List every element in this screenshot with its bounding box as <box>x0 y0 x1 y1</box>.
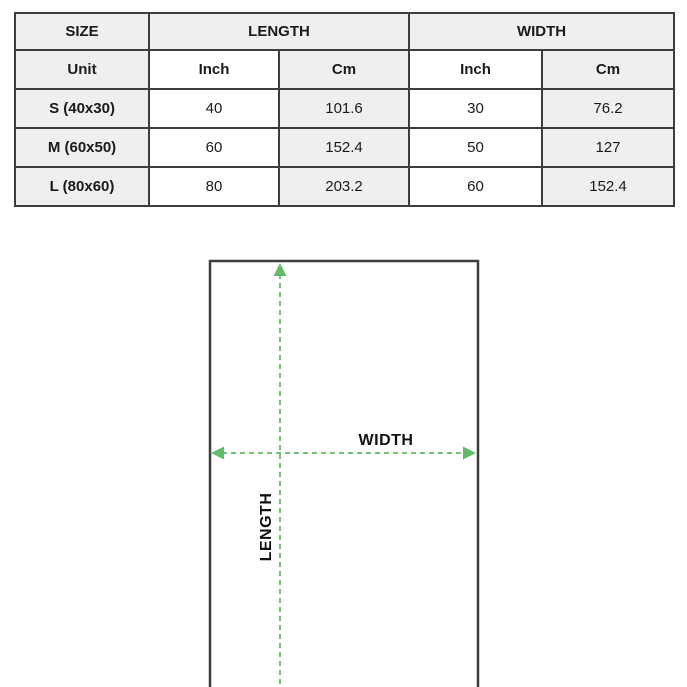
length-cm-cell: 152.4 <box>279 128 409 167</box>
size-guide-page: SIZE LENGTH WIDTH Unit Inch Cm Inch Cm S… <box>0 0 687 687</box>
length-inch-cell: 60 <box>149 128 279 167</box>
size-label-cell: L (80x60) <box>15 167 149 206</box>
size-label-cell: M (60x50) <box>15 128 149 167</box>
table-row-medium: M (60x50) 60 152.4 50 127 <box>15 128 674 167</box>
length-cm-cell: 101.6 <box>279 89 409 128</box>
width-cm-header-cell: Cm <box>542 50 674 89</box>
table-row-large: L (80x60) 80 203.2 60 152.4 <box>15 167 674 206</box>
table-row-small: S (40x30) 40 101.6 30 76.2 <box>15 89 674 128</box>
unit-header-cell: Unit <box>15 50 149 89</box>
blanket-outline <box>210 261 478 687</box>
width-cm-cell: 152.4 <box>542 167 674 206</box>
size-chart-table: SIZE LENGTH WIDTH Unit Inch Cm Inch Cm S… <box>14 12 675 207</box>
length-inch-cell: 80 <box>149 167 279 206</box>
width-cm-cell: 76.2 <box>542 89 674 128</box>
length-inch-header-cell: Inch <box>149 50 279 89</box>
length-column-header: LENGTH <box>149 13 409 50</box>
length-cm-cell: 203.2 <box>279 167 409 206</box>
width-cm-cell: 127 <box>542 128 674 167</box>
length-dimension-label: LENGTH <box>258 482 276 572</box>
width-inch-cell: 60 <box>409 167 542 206</box>
width-arrowhead-right-icon <box>463 447 476 460</box>
width-column-header: WIDTH <box>409 13 674 50</box>
size-column-header: SIZE <box>15 13 149 50</box>
width-dimension-label: WIDTH <box>341 432 431 450</box>
width-inch-cell: 30 <box>409 89 542 128</box>
table-unit-row: Unit Inch Cm Inch Cm <box>15 50 674 89</box>
width-inch-cell: 50 <box>409 128 542 167</box>
table-header-row: SIZE LENGTH WIDTH <box>15 13 674 50</box>
length-cm-header-cell: Cm <box>279 50 409 89</box>
length-inch-cell: 40 <box>149 89 279 128</box>
length-arrowhead-up-icon <box>274 263 287 276</box>
width-inch-header-cell: Inch <box>409 50 542 89</box>
size-label-cell: S (40x30) <box>15 89 149 128</box>
width-arrowhead-left-icon <box>211 447 224 460</box>
